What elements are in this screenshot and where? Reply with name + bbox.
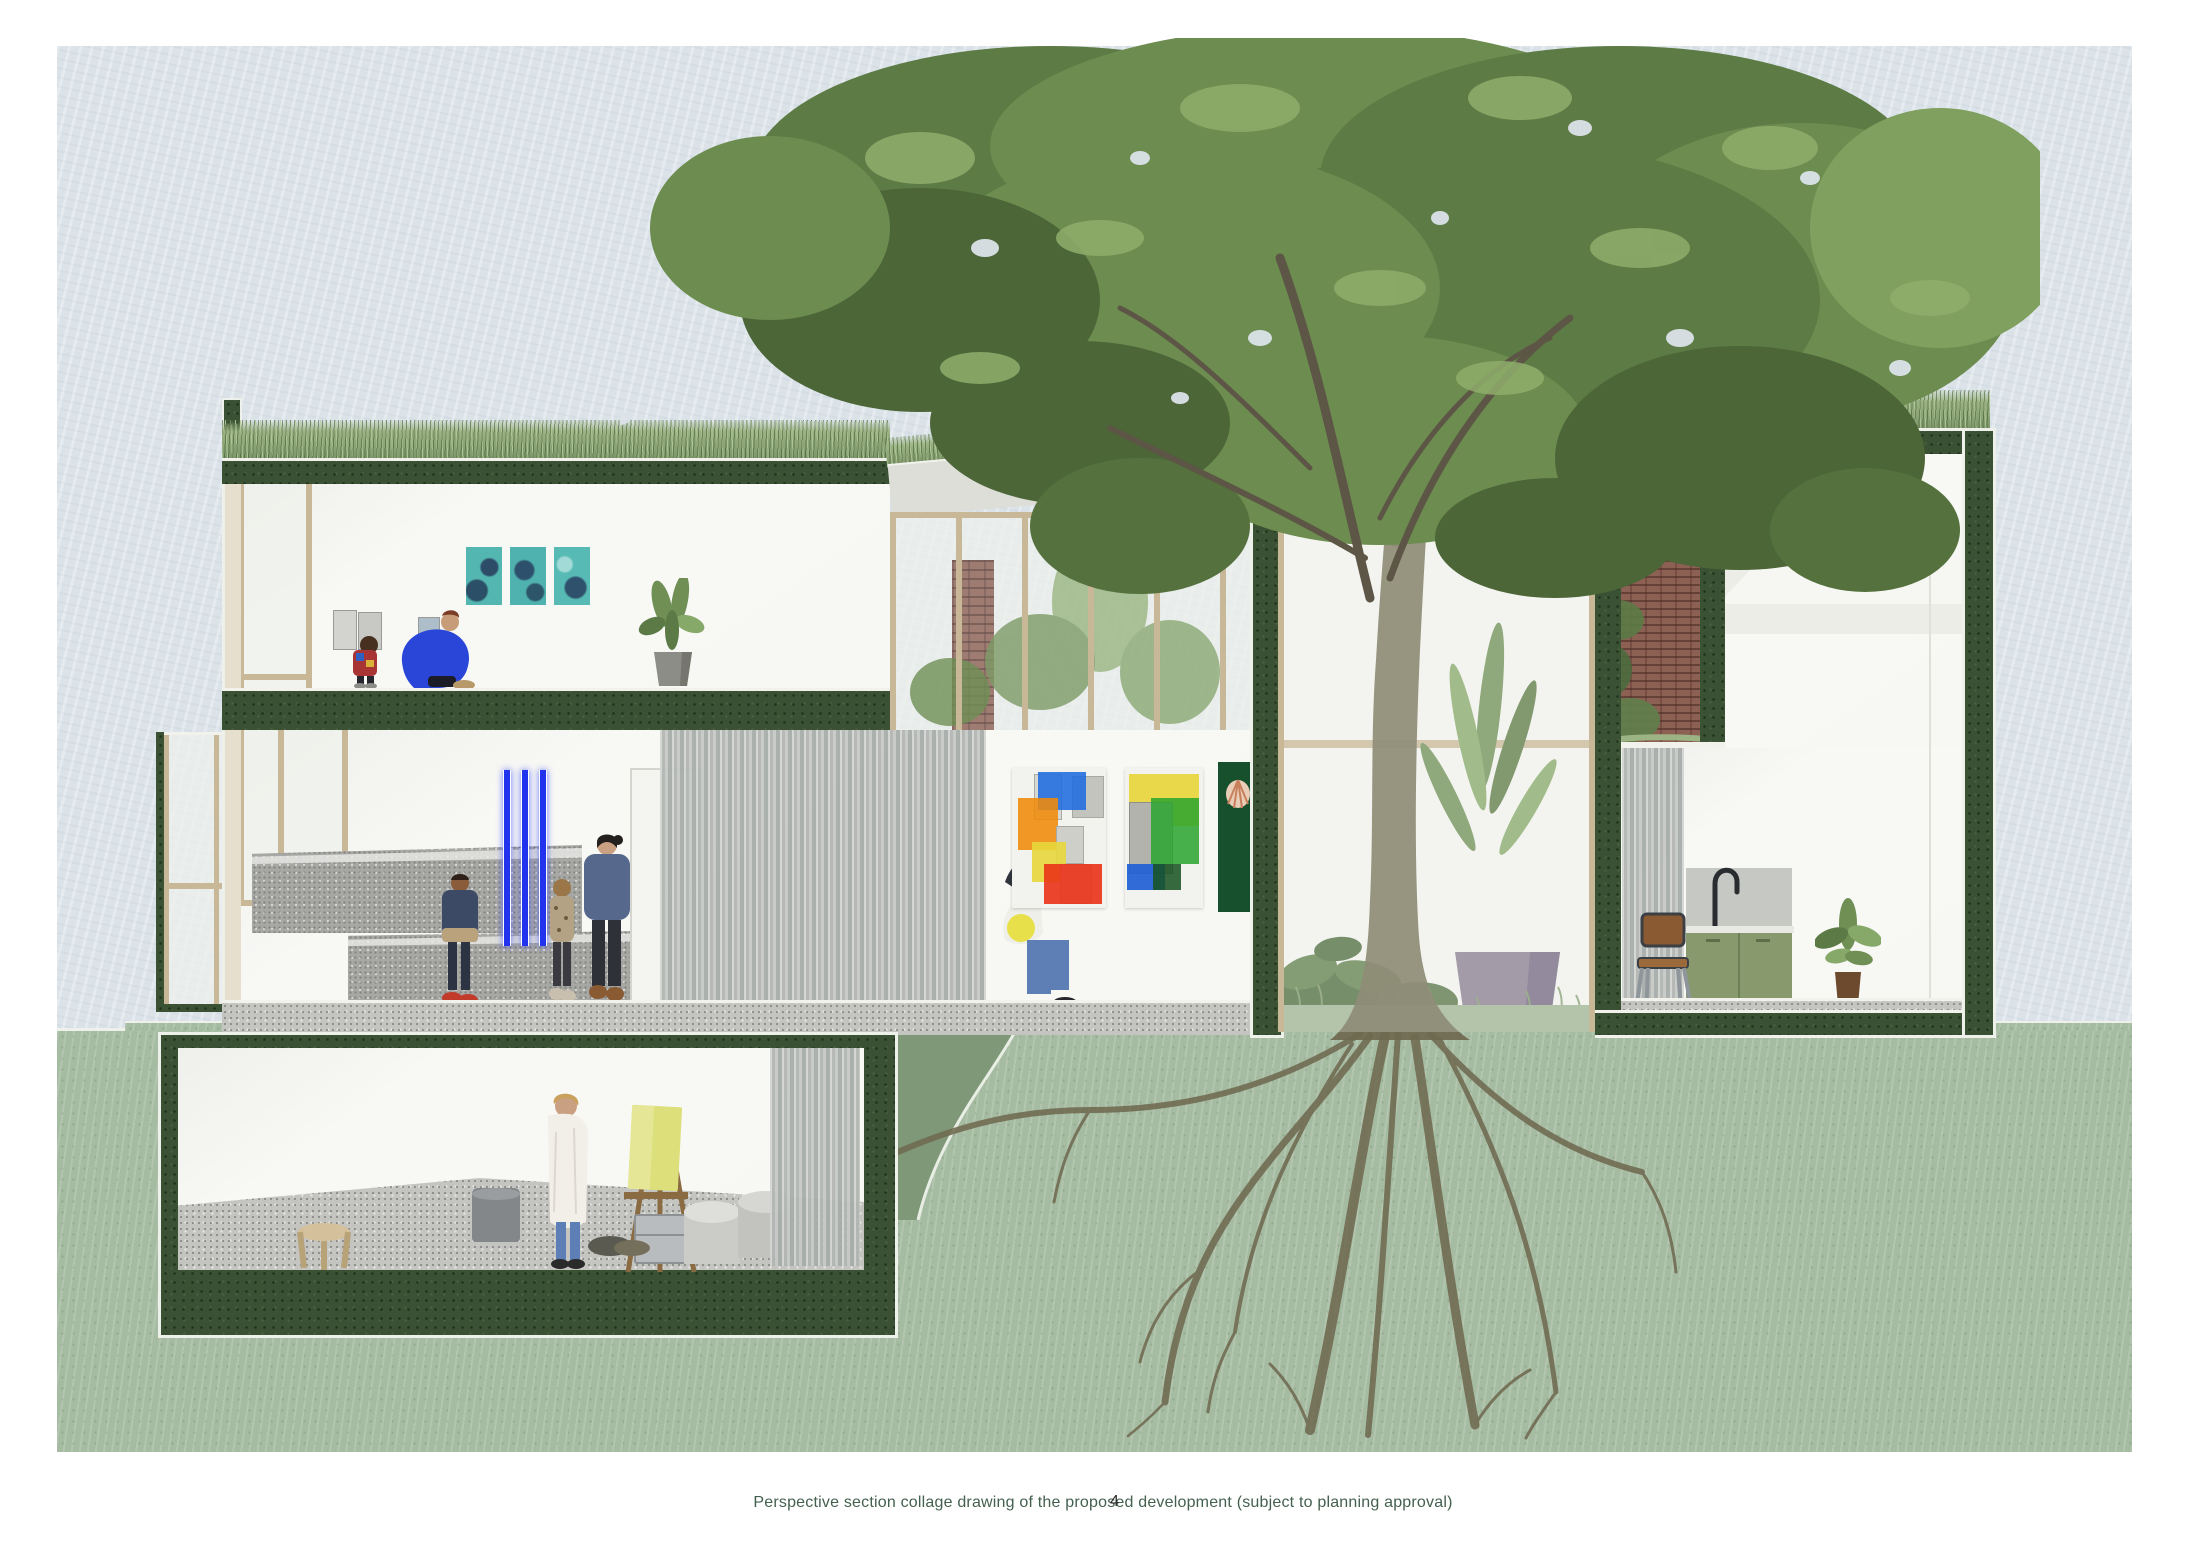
basement-art-studio: [178, 1048, 864, 1270]
tree-roots: [840, 1030, 1740, 1442]
transom: [164, 883, 222, 889]
cabinet-door-gap: [1738, 933, 1740, 1007]
gallery-bay-window: [164, 732, 222, 1007]
top-floor-window: [238, 484, 312, 688]
red-square: [1044, 864, 1102, 904]
shell-artwork: [1218, 762, 1254, 912]
wall-corner-line: [1929, 560, 1931, 1000]
teal-artwork-2: [510, 547, 546, 605]
studio-curtain: [770, 1048, 860, 1266]
tree-canopy: [620, 38, 2040, 608]
crouching-adult-blue: [386, 610, 482, 690]
left-facade-middle: [222, 730, 241, 1004]
cabinet-handle: [1706, 939, 1720, 942]
woman-visitor: [575, 832, 637, 1016]
teal-artwork-1: [466, 547, 502, 605]
page-number: 4: [1110, 1493, 1119, 1511]
mullion: [164, 735, 169, 1007]
gallery-floor: [222, 1000, 1250, 1035]
teal-artwork-3: [554, 547, 590, 605]
collage-artwork-2: [1125, 768, 1203, 908]
neon-artwork-strip: [503, 770, 511, 946]
window-sill: [238, 674, 312, 680]
clothes-pile: [586, 1232, 656, 1258]
figure-caption: Perspective section collage drawing of t…: [0, 1494, 2206, 1512]
grey-stool: [472, 1188, 520, 1242]
countertop: [1684, 926, 1794, 933]
neon-artwork-strip: [521, 770, 529, 946]
boy-visitor: [430, 872, 488, 1008]
kitchen-cabinets: [1686, 933, 1792, 1007]
kitchen-room: [1621, 748, 1962, 1032]
green-square: [1151, 798, 1199, 864]
document-page: Perspective section collage drawing of t…: [0, 0, 2206, 1547]
collage-artwork-1: [1012, 768, 1106, 908]
bay-sill-cut: [156, 1004, 222, 1012]
cabinet-handle: [1756, 939, 1770, 942]
faucet: [1705, 856, 1745, 932]
beige-stool: [296, 1222, 352, 1272]
ground-floor-gallery: [238, 730, 1250, 1002]
left-facade-top: [222, 484, 241, 688]
bay-wall-cut: [156, 732, 164, 1010]
window-mullion: [306, 484, 312, 688]
gallery-curtain: [660, 730, 986, 1028]
dark-green-square: [1153, 864, 1181, 890]
mullion: [214, 735, 219, 1007]
kitchen-floor-slab-cut: [1595, 1010, 1990, 1038]
floor-slab-cut: [222, 688, 890, 736]
